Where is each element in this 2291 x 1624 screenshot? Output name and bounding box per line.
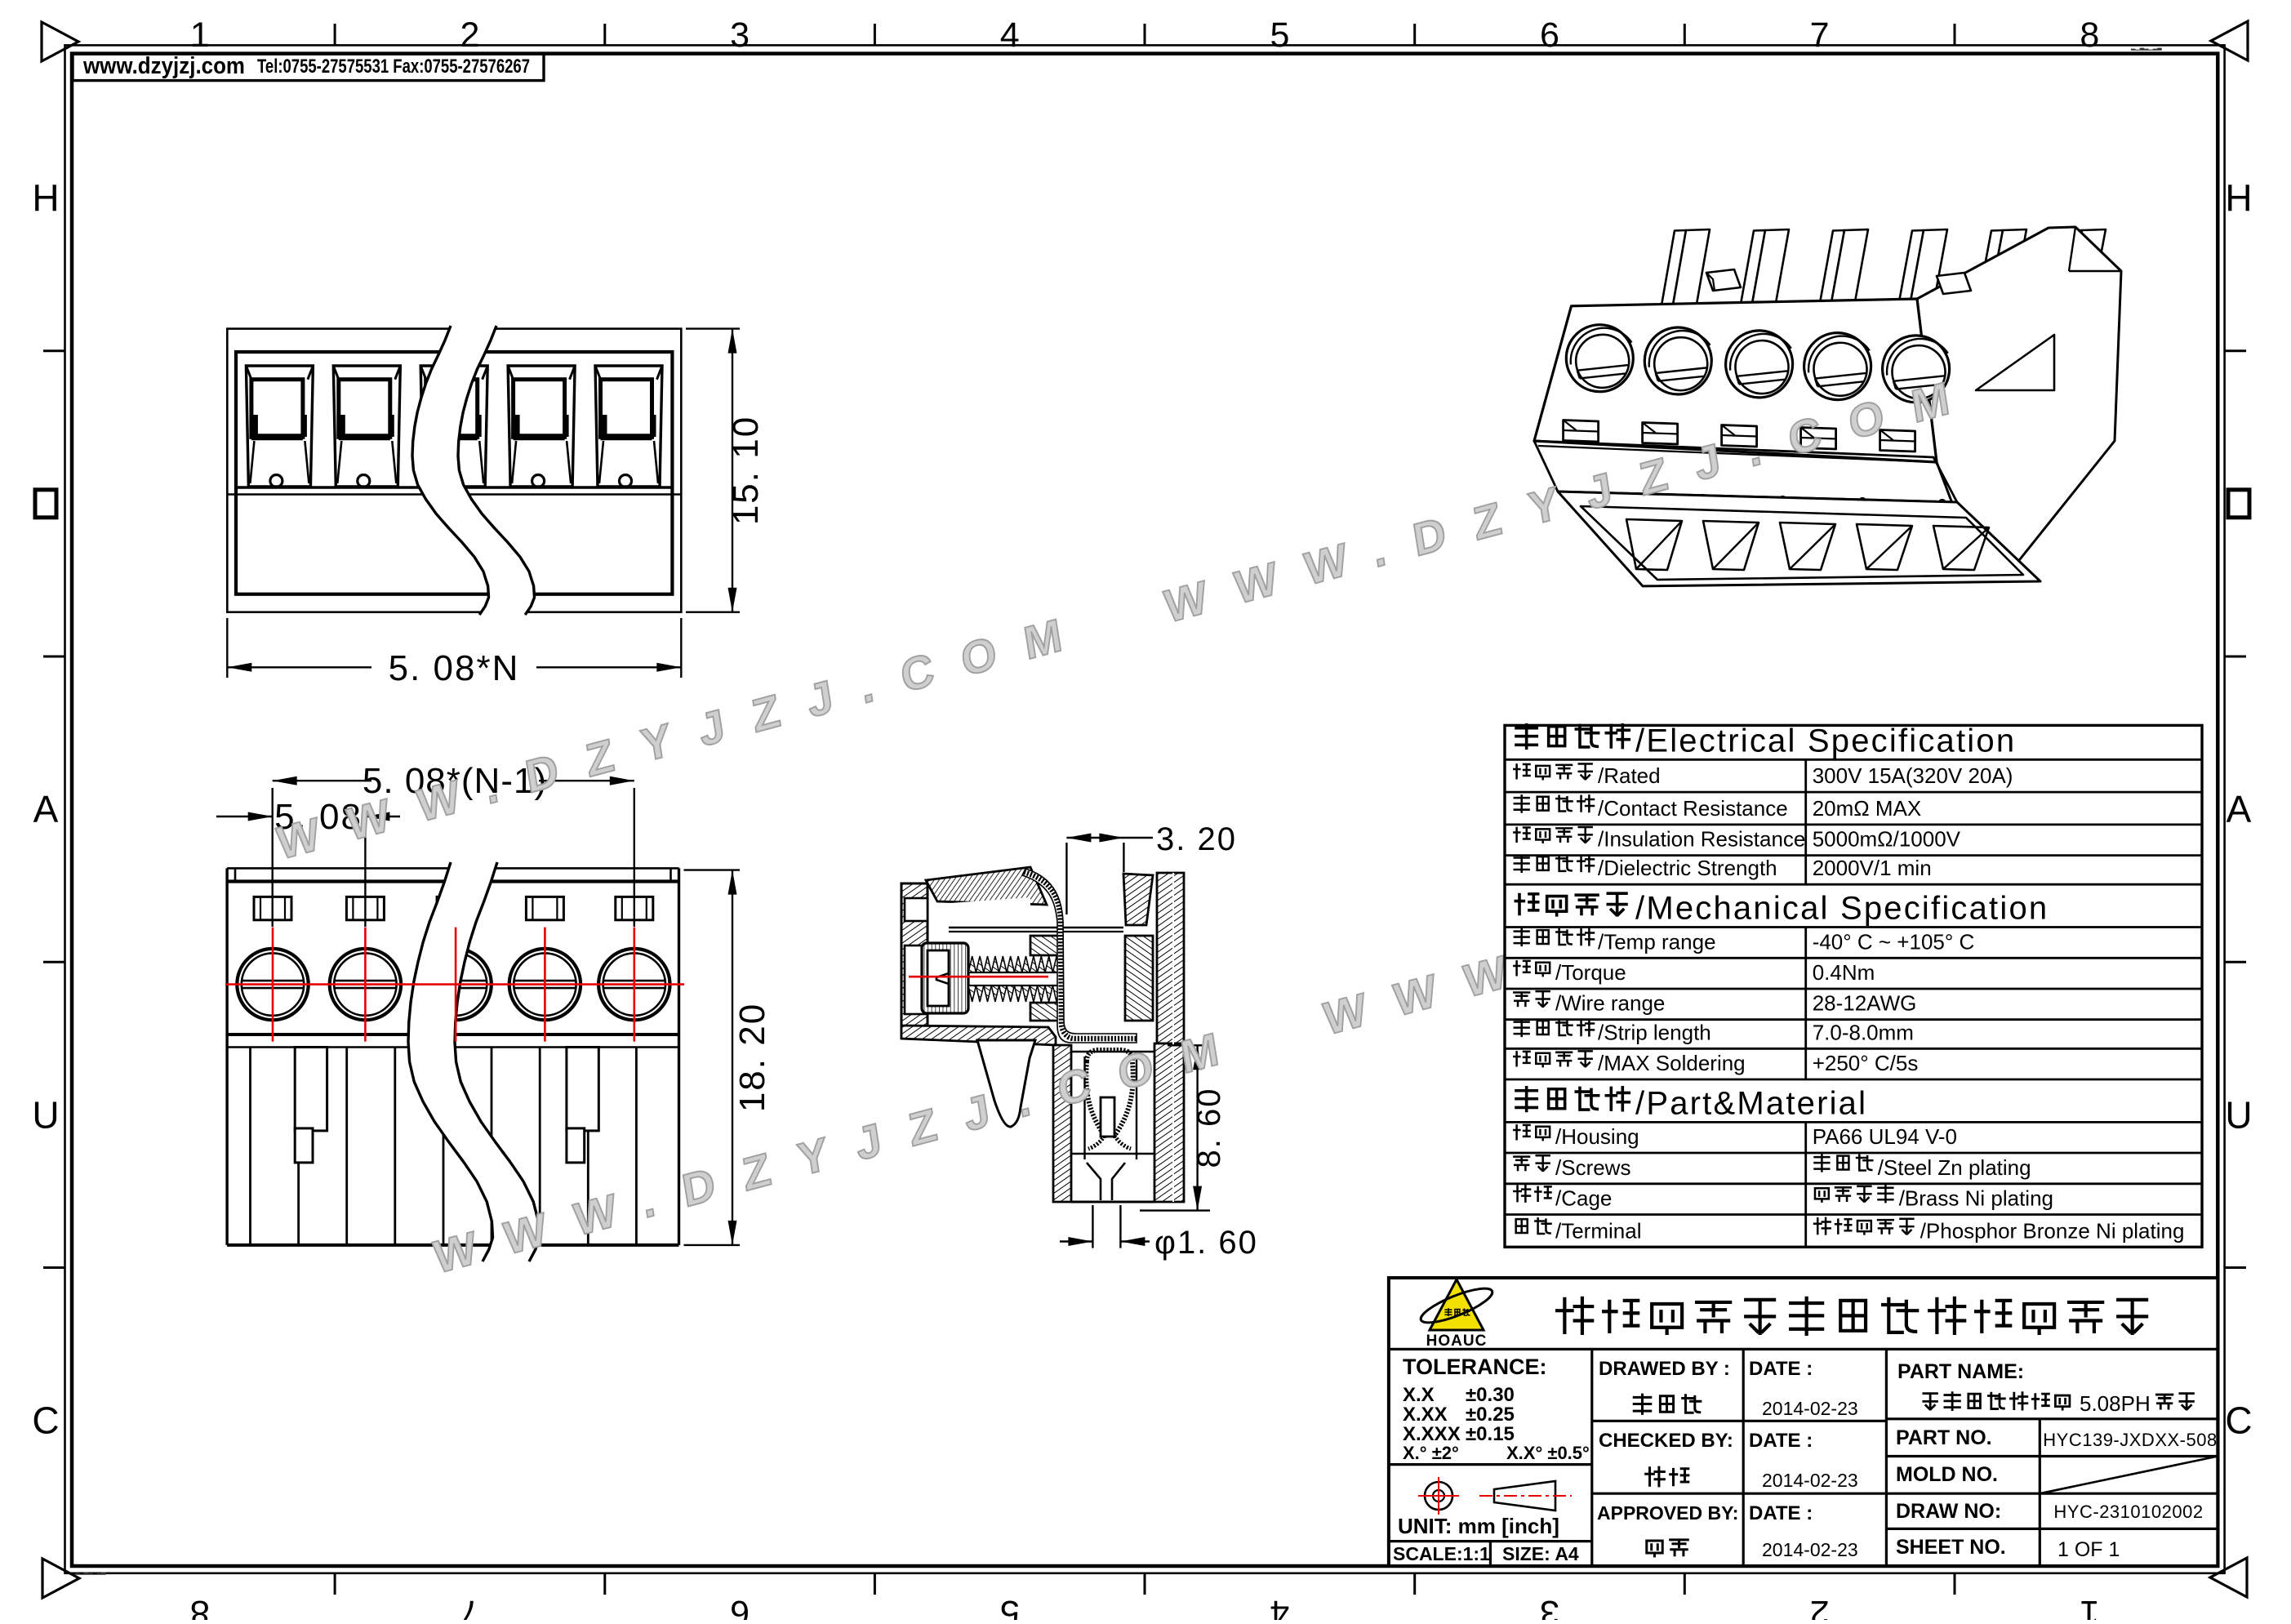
svg-text:2014-02-23: 2014-02-23: [1762, 1398, 1858, 1419]
svg-text:7: 7: [1810, 16, 1830, 55]
svg-text:SIZE: A4: SIZE: A4: [1502, 1543, 1579, 1564]
svg-text:PART NAME:: PART NAME:: [1897, 1360, 2024, 1383]
svg-text:APPROVED BY:: APPROVED BY:: [1597, 1502, 1738, 1524]
svg-text:/Phosphor Bronze Ni plating: /Phosphor Bronze Ni plating: [1920, 1218, 2185, 1243]
svg-text:4: 4: [1000, 16, 1020, 55]
svg-text:SCALE:1:1: SCALE:1:1: [1393, 1543, 1490, 1564]
svg-text:/MAX Soldering: /MAX Soldering: [1598, 1051, 1746, 1075]
svg-text:7: 7: [460, 1593, 479, 1620]
svg-text:3: 3: [1540, 1593, 1559, 1620]
svg-text:www.dzyjzj.com: www.dzyjzj.com: [82, 53, 245, 79]
svg-text:X.X: X.X: [1403, 1384, 1435, 1406]
svg-text:X.XXX: X.XXX: [1403, 1423, 1461, 1445]
svg-text:/Dielectric Strength: /Dielectric Strength: [1598, 856, 1777, 880]
svg-text:±0.30: ±0.30: [1466, 1384, 1515, 1406]
svg-text:/Housing: /Housing: [1555, 1124, 1639, 1149]
svg-text:5.08PH: 5.08PH: [2080, 1391, 2151, 1416]
svg-text:6: 6: [1540, 16, 1559, 55]
svg-text:3. 20: 3. 20: [1156, 821, 1237, 857]
svg-text:/Wire range: /Wire range: [1555, 991, 1665, 1016]
svg-text:DATE :: DATE :: [1749, 1502, 1813, 1524]
svg-text:2: 2: [460, 16, 480, 55]
svg-text:8. 60: 8. 60: [1191, 1088, 1227, 1168]
svg-text:H: H: [32, 177, 59, 220]
svg-text:20mΩ MAX: 20mΩ MAX: [1813, 796, 1922, 821]
svg-text:2014-02-23: 2014-02-23: [1762, 1470, 1858, 1491]
svg-text:/Strip length: /Strip length: [1598, 1020, 1711, 1044]
svg-text:5: 5: [1270, 16, 1289, 55]
svg-text:1: 1: [2080, 1593, 2099, 1620]
svg-text:/Terminal: /Terminal: [1555, 1218, 1641, 1243]
svg-text:TOLERANCE:: TOLERANCE:: [1403, 1355, 1547, 1379]
svg-text:2000V/1 min: 2000V/1 min: [1813, 856, 1932, 880]
svg-text:A: A: [33, 788, 59, 830]
svg-text:X.° ±2°: X.° ±2°: [1403, 1443, 1459, 1463]
svg-text:18. 20: 18. 20: [732, 1003, 772, 1112]
svg-text:28-12AWG: 28-12AWG: [1813, 991, 1917, 1016]
svg-text:MOLD NO.: MOLD NO.: [1896, 1463, 1998, 1486]
svg-text:/Rated: /Rated: [1598, 763, 1661, 788]
svg-text:/Insulation Resistance: /Insulation Resistance: [1598, 827, 1805, 852]
svg-text:HOAUC: HOAUC: [1426, 1333, 1488, 1350]
svg-text:U: U: [2225, 1093, 2252, 1136]
svg-text:1: 1: [190, 16, 210, 55]
svg-text:5000mΩ/1000V: 5000mΩ/1000V: [1813, 827, 1961, 852]
svg-text:PART NO.: PART NO.: [1896, 1426, 1992, 1449]
svg-text:Tel:0755-27575531 Fax:0755-27: Tel:0755-27575531 Fax:0755-27576267: [257, 56, 530, 78]
svg-text:U: U: [32, 1093, 59, 1136]
svg-text:HYC-2310102002: HYC-2310102002: [2053, 1502, 2203, 1522]
svg-text:6: 6: [730, 1593, 750, 1620]
svg-text:φ1. 60: φ1. 60: [1154, 1225, 1258, 1261]
svg-text:DRAWED BY :: DRAWED BY :: [1599, 1358, 1730, 1380]
svg-text:8: 8: [2080, 16, 2099, 55]
svg-text:/Torque: /Torque: [1555, 960, 1626, 985]
svg-text:/Brass Ni plating: /Brass Ni plating: [1899, 1186, 2053, 1211]
svg-text:A: A: [2226, 788, 2252, 830]
svg-text:X.XX: X.XX: [1403, 1404, 1448, 1426]
svg-text:0.4Nm: 0.4Nm: [1813, 960, 1875, 985]
svg-text:15. 10: 15. 10: [726, 416, 766, 525]
svg-text:1 OF 1: 1 OF 1: [2057, 1538, 2120, 1561]
svg-text:DATE :: DATE :: [1749, 1358, 1813, 1380]
svg-text:/Temp range: /Temp range: [1598, 929, 1716, 954]
svg-text:▂▁▃▂▁▂▃: ▂▁▃▂▁▂▃: [74, 1569, 106, 1575]
svg-text:+250° C/5s: +250° C/5s: [1813, 1051, 1919, 1075]
svg-text:4: 4: [1270, 1593, 1289, 1620]
svg-text:±0.25: ±0.25: [1466, 1404, 1515, 1426]
svg-text:300V 15A(320V 20A): 300V 15A(320V 20A): [1813, 763, 2013, 788]
svg-text:HYC139-JXDXX-508: HYC139-JXDXX-508: [2043, 1430, 2217, 1450]
svg-text:/Mechanical Specification: /Mechanical Specification: [1635, 891, 2049, 927]
svg-text:/Part&Material: /Part&Material: [1635, 1085, 1867, 1121]
svg-text:DATE :: DATE :: [1749, 1430, 1813, 1452]
svg-text:PA66 UL94 V-0: PA66 UL94 V-0: [1813, 1124, 1957, 1149]
svg-text:2014-02-23: 2014-02-23: [1762, 1539, 1858, 1560]
svg-text:/Screws: /Screws: [1555, 1155, 1630, 1180]
svg-text:±0.15: ±0.15: [1466, 1423, 1515, 1445]
svg-text:UNIT: mm [inch]: UNIT: mm [inch]: [1398, 1514, 1559, 1538]
svg-text:▂▁▃▂▁▂▃: ▂▁▃▂▁▂▃: [2130, 45, 2162, 51]
svg-text:5. 08*N: 5. 08*N: [389, 648, 520, 688]
svg-text:/Contact Resistance: /Contact Resistance: [1598, 796, 1788, 821]
svg-text:5: 5: [1000, 1593, 1020, 1620]
svg-text:7.0-8.0mm: 7.0-8.0mm: [1813, 1020, 1914, 1044]
svg-text:2: 2: [1810, 1593, 1830, 1620]
svg-text:C: C: [2225, 1399, 2252, 1442]
svg-text:/Cage: /Cage: [1555, 1186, 1612, 1211]
svg-text:8: 8: [190, 1593, 210, 1620]
svg-text:-40° C ~ +105° C: -40° C ~ +105° C: [1813, 929, 1975, 954]
svg-text:3: 3: [730, 16, 750, 55]
svg-text:X.X° ±0.5°: X.X° ±0.5°: [1506, 1443, 1590, 1463]
svg-text:/Steel Zn plating: /Steel Zn plating: [1878, 1155, 2031, 1180]
svg-text:SHEET NO.: SHEET NO.: [1896, 1536, 2006, 1559]
svg-text:C: C: [32, 1399, 59, 1442]
svg-text:H: H: [2225, 177, 2252, 220]
svg-text:/Electrical Specification: /Electrical Specification: [1635, 723, 2016, 759]
svg-text:DRAW NO:: DRAW NO:: [1896, 1500, 2001, 1523]
svg-text:CHECKED BY:: CHECKED BY:: [1599, 1430, 1733, 1452]
